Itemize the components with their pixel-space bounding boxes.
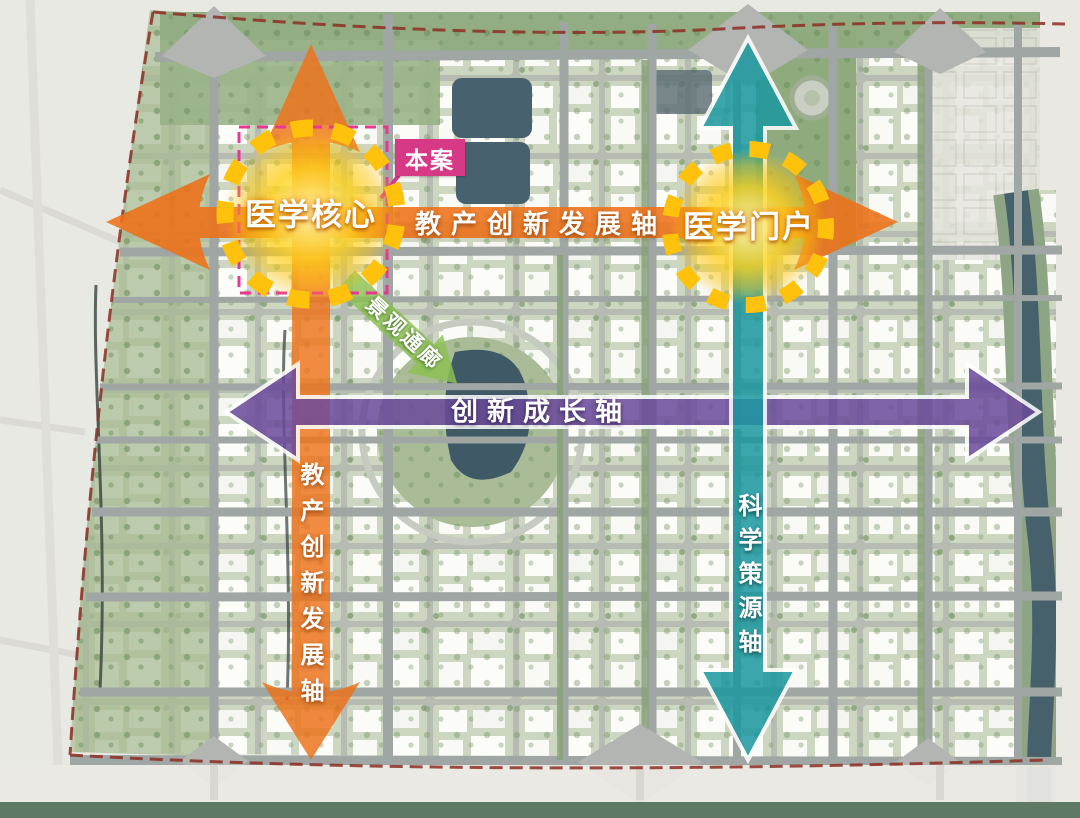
urban-master-plan-map: 教产创新发展轴 教产创新发展轴 创新成长轴 科学策源轴 景观通廊 医学核心 医学… <box>0 0 1080 818</box>
medical-core-label: 医学核心 <box>245 201 377 232</box>
axis-label-industry-education-vertical: 教产创新发展轴 <box>298 462 322 714</box>
site-callout: 本案 <box>395 139 465 176</box>
axis-label-innovation-growth: 创新成长轴 <box>451 399 631 426</box>
axis-label-science-source: 科学策源轴 <box>736 493 760 663</box>
axis-label-industry-education-horizontal: 教产创新发展轴 <box>415 212 667 238</box>
medical-gateway-label: 医学门户 <box>683 213 815 244</box>
innovation-growth-axis-arrow <box>226 364 1039 460</box>
site-callout-label: 本案 <box>405 141 455 175</box>
